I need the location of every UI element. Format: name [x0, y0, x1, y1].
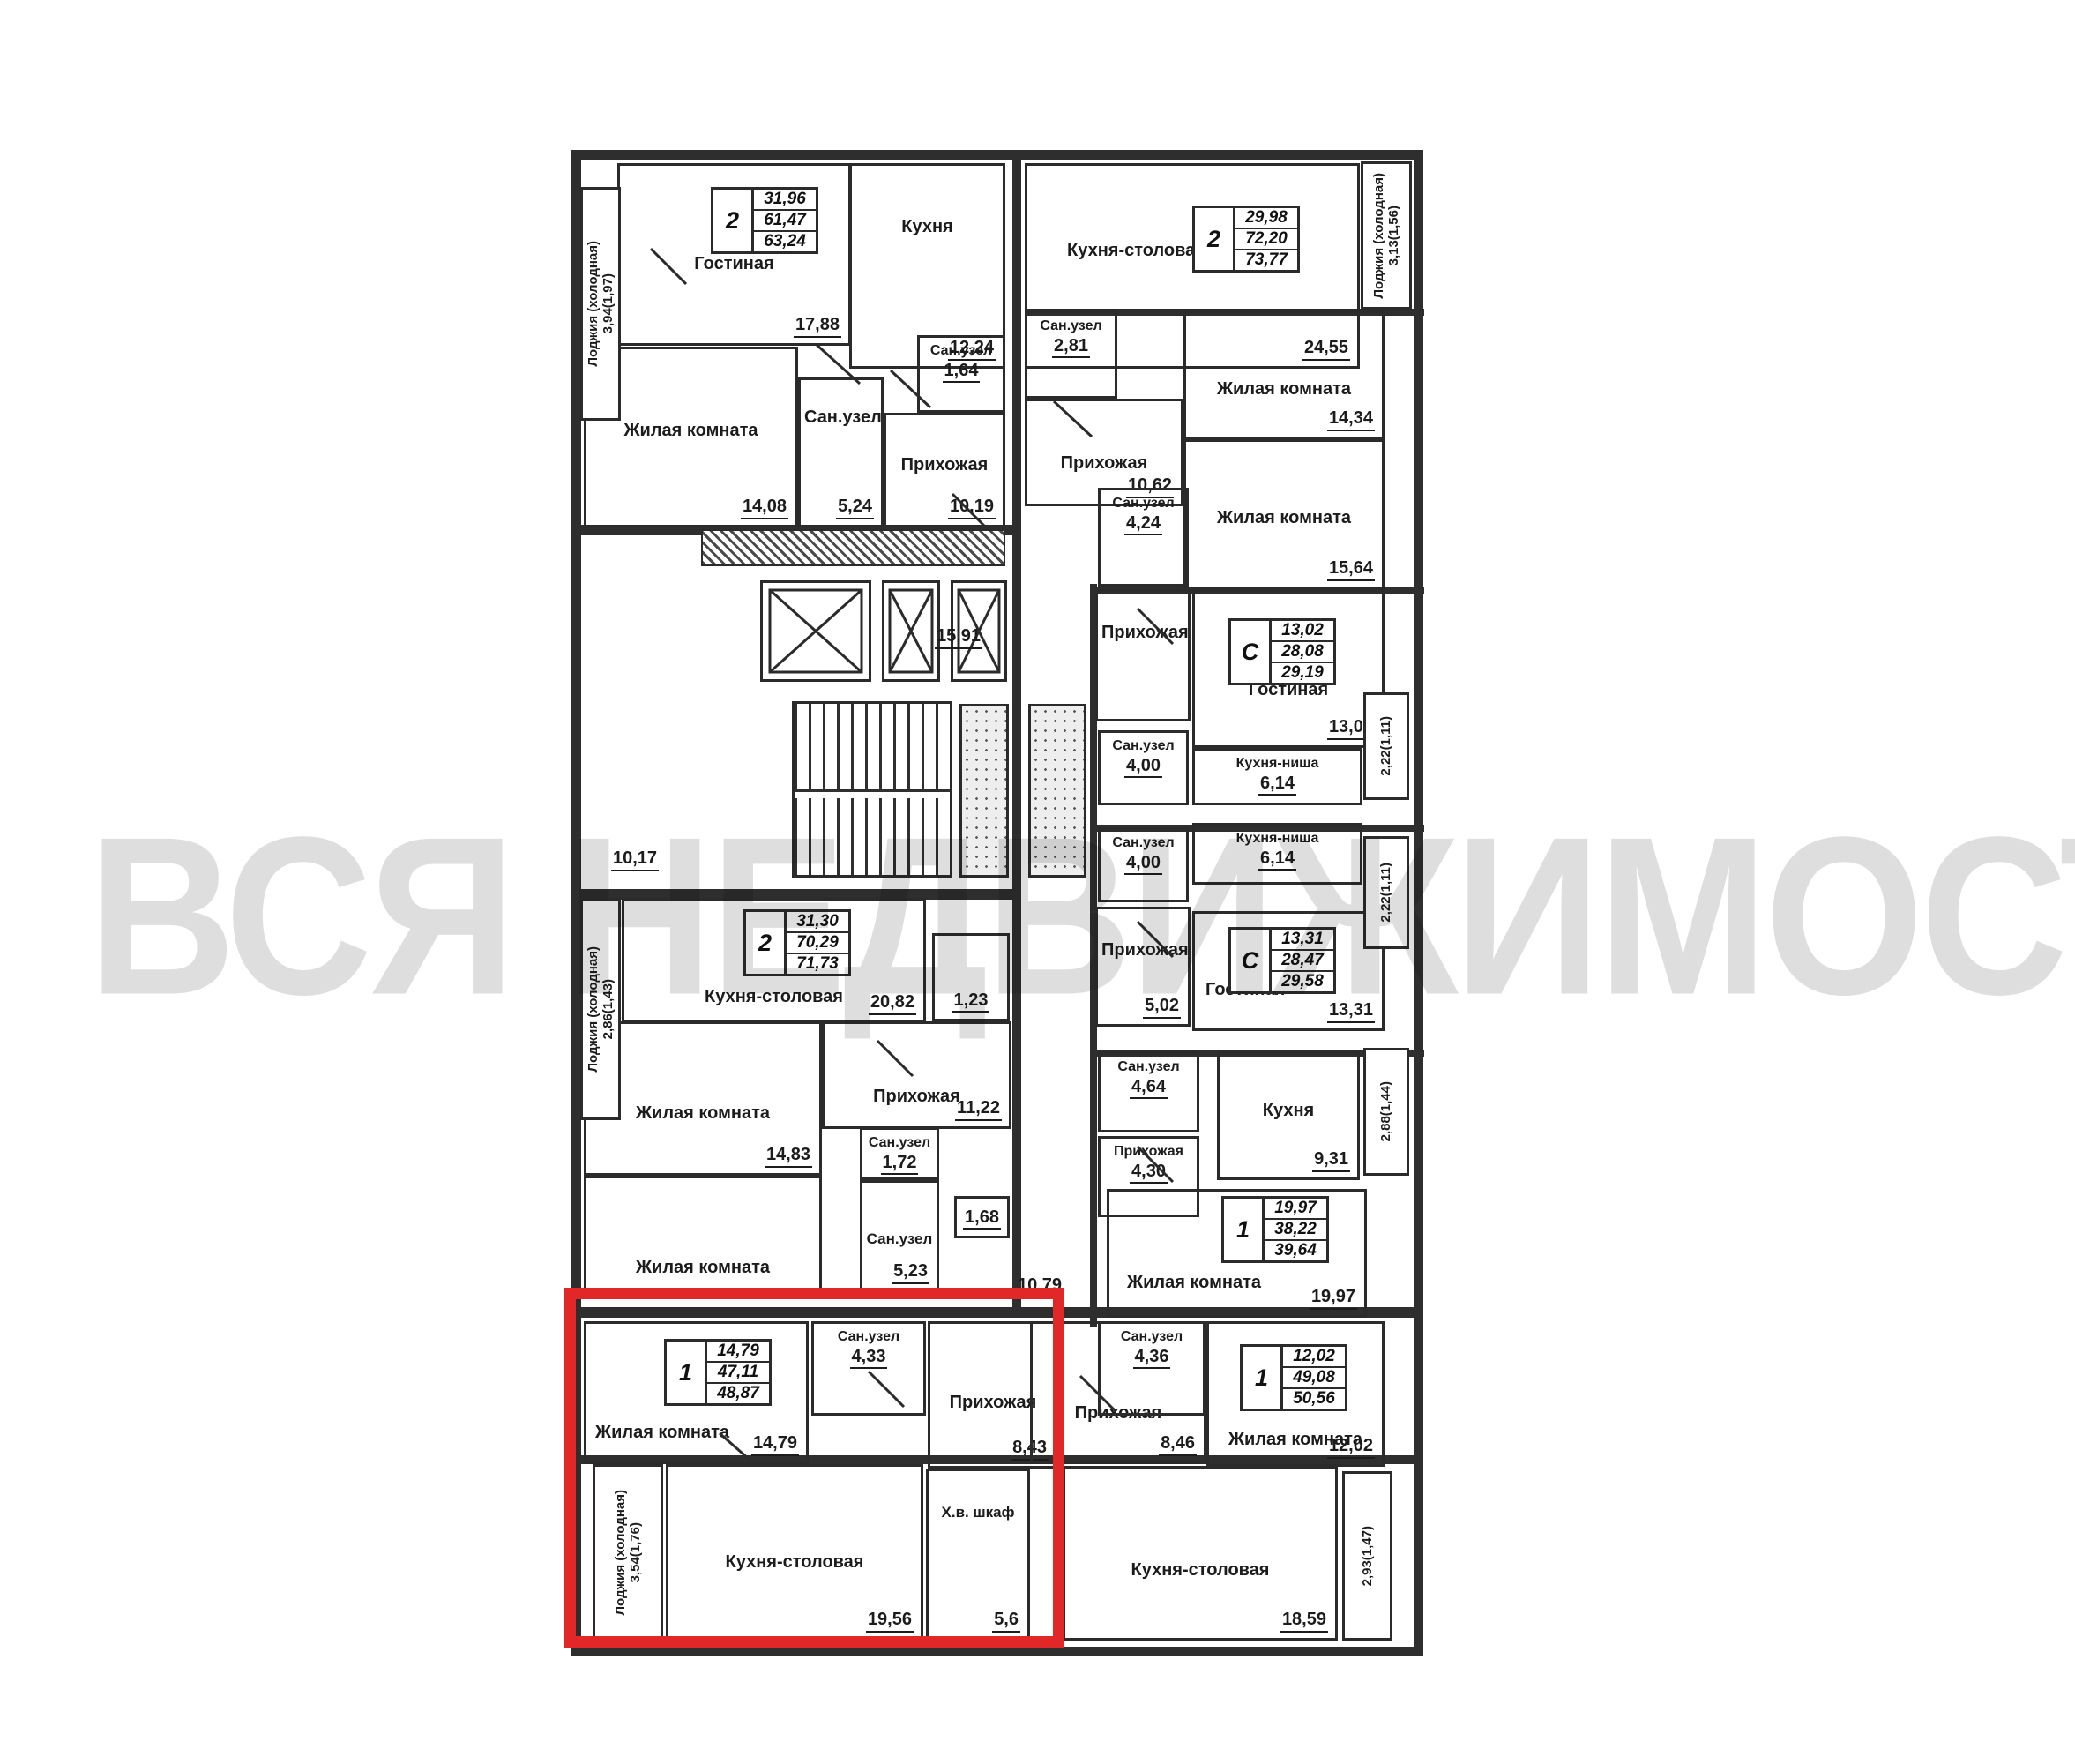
- apartment-spec-table: 1 12,02 49,08 50,56: [1240, 1344, 1347, 1411]
- highlighted-unit-box: [564, 1288, 1064, 1648]
- apartment-spec-table: 2 31,96 61,47 63,24: [711, 187, 818, 254]
- floor-plan-page: Гостиная17,88 Кухня12,24 Жилая комната14…: [0, 0, 2075, 1764]
- apartment-spec-table: 1 19,97 38,22 39,64: [1221, 1196, 1329, 1263]
- apartment-spec-table: С 13,02 28,08 29,19: [1228, 618, 1336, 685]
- apartment-spec-table: 2 29,98 72,20 73,77: [1192, 206, 1300, 273]
- apartment-spec-table: 2 31,30 70,29 71,73: [743, 909, 851, 976]
- apartment-spec-table: С 13,31 28,47 29,58: [1228, 927, 1336, 994]
